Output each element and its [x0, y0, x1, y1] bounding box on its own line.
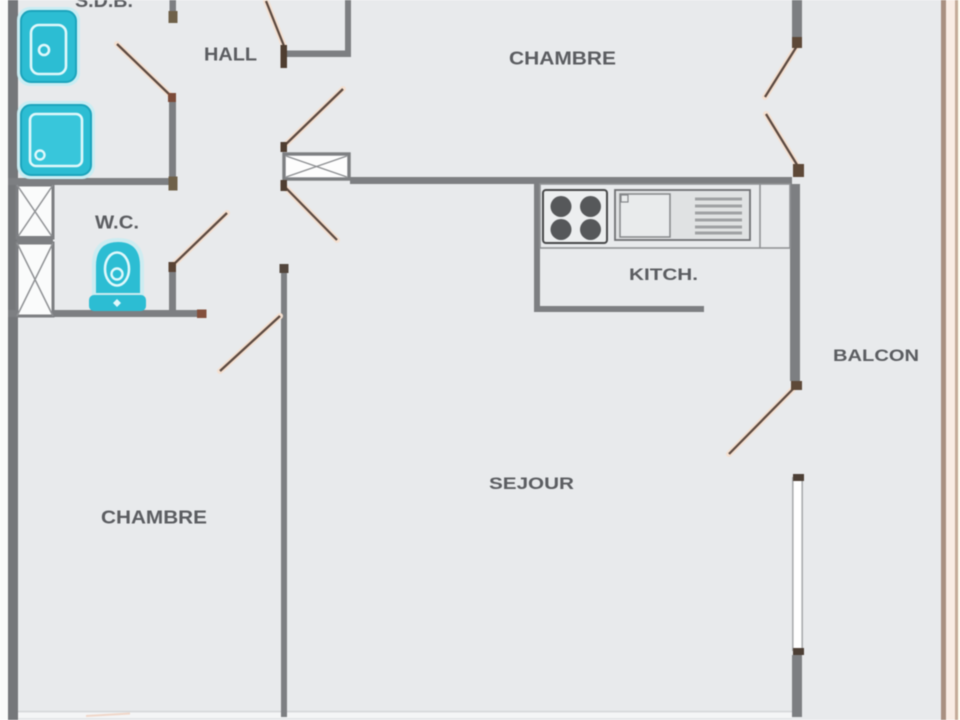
svg-text:HALL: HALL: [204, 45, 257, 65]
svg-text:SEJOUR: SEJOUR: [489, 474, 574, 493]
svg-text:CHAMBRE: CHAMBRE: [509, 49, 616, 69]
svg-text:BALCON: BALCON: [833, 346, 919, 365]
svg-text:W.C.: W.C.: [95, 213, 139, 233]
svg-text:CHAMBRE: CHAMBRE: [101, 508, 207, 528]
svg-text:KITCH.: KITCH.: [629, 265, 698, 284]
svg-text:S.D.B.: S.D.B.: [75, 0, 133, 11]
